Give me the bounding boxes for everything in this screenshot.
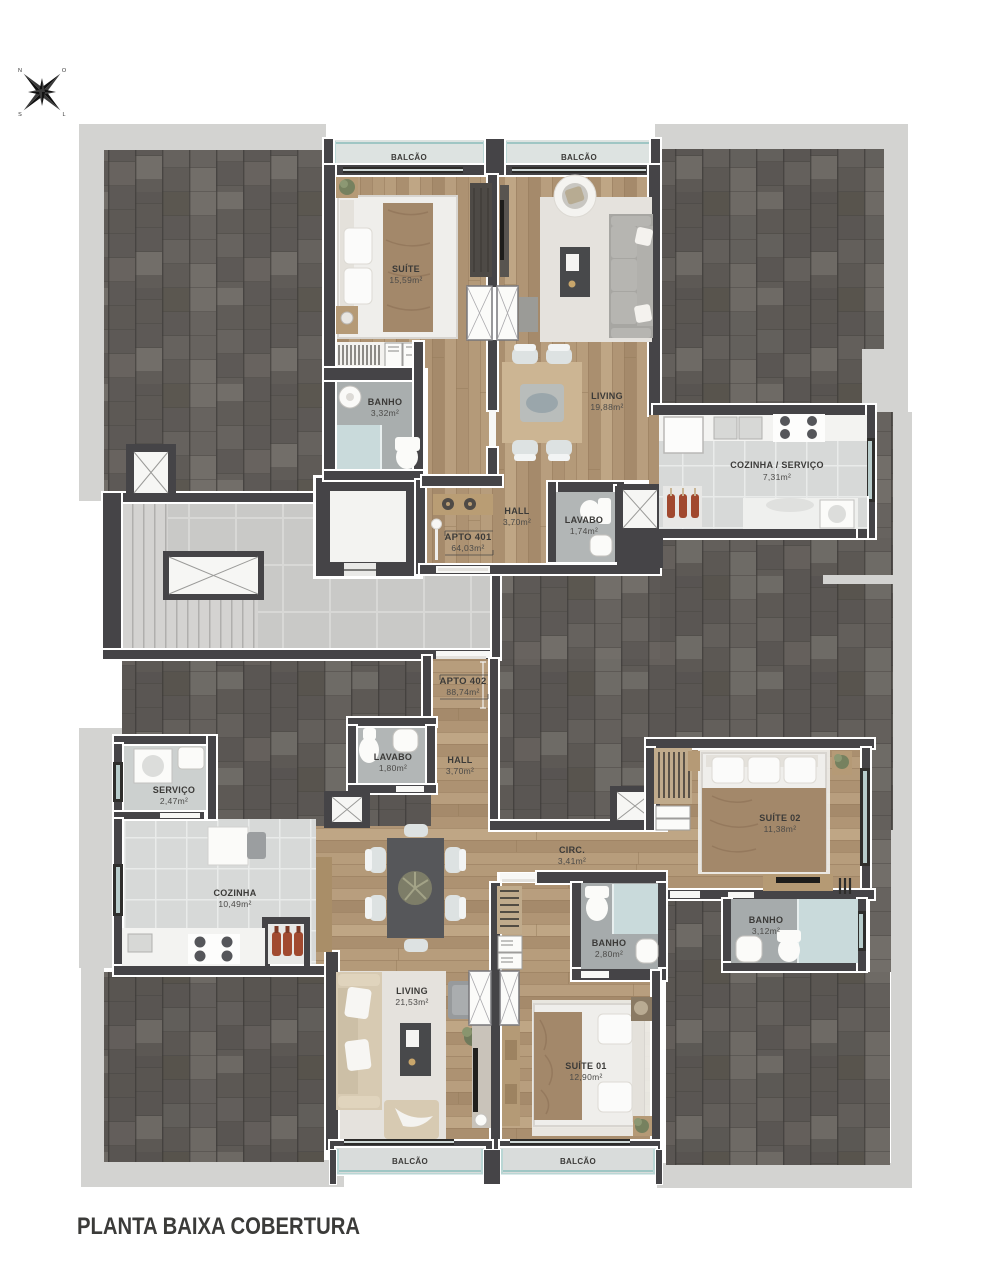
svg-text:SUÍTE 02: SUÍTE 02 <box>759 813 800 823</box>
svg-text:N: N <box>18 68 22 74</box>
svg-text:SUÍTE 01: SUÍTE 01 <box>565 1061 606 1071</box>
svg-text:2,80m²: 2,80m² <box>595 949 623 959</box>
svg-text:BANHO: BANHO <box>368 397 403 407</box>
svg-text:BALCÃO: BALCÃO <box>391 153 427 162</box>
svg-text:88,74m²: 88,74m² <box>446 687 479 697</box>
svg-text:3,70m²: 3,70m² <box>446 766 474 776</box>
svg-text:BANHO: BANHO <box>749 915 784 925</box>
svg-text:3,12m²: 3,12m² <box>752 926 780 936</box>
svg-text:CIRC.: CIRC. <box>559 845 585 855</box>
svg-text:2,47m²: 2,47m² <box>160 796 188 806</box>
svg-text:12,90m²: 12,90m² <box>569 1072 602 1082</box>
svg-text:APTO 401: APTO 401 <box>444 532 492 543</box>
svg-text:BALCÃO: BALCÃO <box>392 1157 428 1166</box>
svg-text:HALL: HALL <box>504 506 529 516</box>
svg-text:PLANTA BAIXA COBERTURA: PLANTA BAIXA COBERTURA <box>77 1213 360 1240</box>
svg-text:3,41m²: 3,41m² <box>558 856 586 866</box>
svg-text:11,38m²: 11,38m² <box>764 824 797 834</box>
svg-text:L: L <box>62 112 65 118</box>
svg-text:LAVABO: LAVABO <box>374 752 412 762</box>
svg-text:S: S <box>18 112 22 118</box>
svg-text:BALCÃO: BALCÃO <box>561 153 597 162</box>
svg-text:19,88m²: 19,88m² <box>590 402 623 412</box>
svg-text:64,03m²: 64,03m² <box>451 543 484 553</box>
svg-text:SERVIÇO: SERVIÇO <box>153 785 195 795</box>
svg-text:COZINHA: COZINHA <box>213 888 256 898</box>
svg-text:1,74m²: 1,74m² <box>570 526 598 536</box>
svg-text:LAVABO: LAVABO <box>565 515 603 525</box>
svg-text:7,31m²: 7,31m² <box>763 472 791 482</box>
svg-text:15,59m²: 15,59m² <box>389 275 422 285</box>
svg-text:O: O <box>62 68 67 74</box>
svg-text:BANHO: BANHO <box>592 938 627 948</box>
svg-text:3,32m²: 3,32m² <box>371 408 399 418</box>
svg-text:21,53m²: 21,53m² <box>395 997 428 1007</box>
svg-text:HALL: HALL <box>447 755 472 765</box>
svg-text:COZINHA / SERVIÇO: COZINHA / SERVIÇO <box>730 460 824 470</box>
svg-text:10,49m²: 10,49m² <box>218 899 251 909</box>
svg-text:LIVING: LIVING <box>396 986 428 996</box>
svg-text:BALCÃO: BALCÃO <box>560 1157 596 1166</box>
svg-text:SUÍTE: SUÍTE <box>392 264 420 274</box>
svg-text:3,70m²: 3,70m² <box>503 517 531 527</box>
svg-text:APTO 402: APTO 402 <box>439 676 486 687</box>
svg-text:1,80m²: 1,80m² <box>379 763 407 773</box>
svg-text:LIVING: LIVING <box>591 391 623 401</box>
